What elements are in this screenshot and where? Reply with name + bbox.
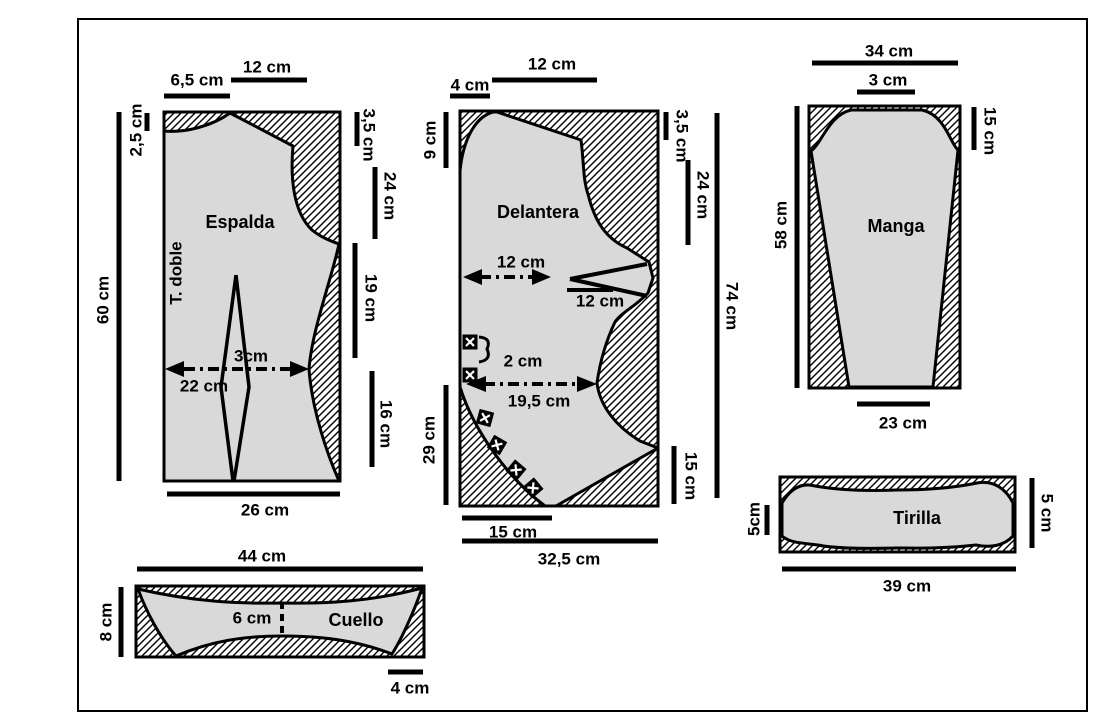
delantera-dim-bottom-short: 15 cm bbox=[489, 524, 537, 541]
delantera-dim-top-width: 12 cm bbox=[528, 56, 576, 73]
espalda-dim-dart-width: 3cm bbox=[234, 348, 268, 365]
delantera-piece-name: Delantera bbox=[497, 203, 579, 221]
cuello-piece-name: Cuello bbox=[328, 611, 383, 629]
espalda-dim-bottom-width: 26 cm bbox=[241, 502, 289, 519]
delantera-dim-waist-width: 19,5 cm bbox=[508, 393, 570, 410]
delantera-dim-chest-width: 12 cm bbox=[497, 254, 545, 271]
espalda-piece-name: Espalda bbox=[205, 213, 274, 231]
pattern-diagram-svg bbox=[0, 0, 1099, 728]
espalda-fold-label: T. doble bbox=[168, 241, 185, 304]
espalda-dim-armhole-depth: 24 cm bbox=[382, 172, 399, 220]
button-icon bbox=[463, 368, 478, 383]
delantera-dim-front-edge: 4 cm bbox=[451, 77, 490, 94]
delantera-dim-button-spacing: 2 cm bbox=[504, 353, 543, 370]
espalda-dim-waist-width: 22 cm bbox=[180, 378, 228, 395]
manga-dim-top-width: 34 cm bbox=[865, 43, 913, 60]
espalda-dim-neck-drop: 2,5 cm bbox=[128, 104, 145, 157]
manga-dim-cap-flat: 3 cm bbox=[869, 72, 908, 89]
delantera-dim-dart-length: 12 cm bbox=[576, 293, 624, 310]
espalda-dim-armhole-top: 3,5 cm bbox=[361, 109, 378, 162]
button-icon bbox=[463, 335, 478, 350]
manga-dim-bottom-width: 23 cm bbox=[879, 415, 927, 432]
manga-piece-name: Manga bbox=[867, 217, 924, 235]
espalda-piece bbox=[119, 80, 375, 494]
pattern-diagram: 6,5 cm 12 cm 2,5 cm 60 cm 3,5 cm 24 cm 1… bbox=[0, 0, 1099, 728]
espalda-dim-waist-side: 19 cm bbox=[363, 274, 380, 322]
espalda-dim-side-height: 60 cm bbox=[95, 276, 112, 324]
cuello-dim-top-width: 44 cm bbox=[238, 548, 286, 565]
tirilla-dim-left-height: 5cm bbox=[746, 502, 763, 536]
delantera-dim-armhole-top: 3,5 cm bbox=[674, 110, 691, 163]
delantera-dim-armhole-depth: 24 cm bbox=[695, 171, 712, 219]
espalda-dim-top-width: 12 cm bbox=[243, 59, 291, 76]
tirilla-piece-name: Tirilla bbox=[893, 509, 941, 527]
espalda-dim-shoulder-top: 6,5 cm bbox=[171, 72, 224, 89]
delantera-dim-bottom-width: 32,5 cm bbox=[538, 551, 600, 568]
delantera-dim-side-bottom: 15 cm bbox=[683, 452, 700, 500]
manga-dim-cap-height: 15 cm bbox=[982, 107, 999, 155]
cuello-dim-center-width: 6 cm bbox=[233, 610, 272, 627]
tirilla-dim-bottom-width: 39 cm bbox=[883, 578, 931, 595]
cuello-dim-left-height: 8 cm bbox=[98, 603, 115, 642]
delantera-dim-neck-depth: 9 cm bbox=[422, 121, 439, 160]
delantera-dim-full-height: 74 cm bbox=[724, 282, 741, 330]
cuello-dim-bottom-right: 4 cm bbox=[391, 680, 430, 697]
manga-dim-length: 58 cm bbox=[773, 201, 790, 249]
tirilla-dim-right-height: 5 cm bbox=[1039, 494, 1056, 533]
delantera-dim-curve-height: 29 cm bbox=[421, 416, 438, 464]
espalda-dim-hip-side: 16 cm bbox=[378, 400, 395, 448]
